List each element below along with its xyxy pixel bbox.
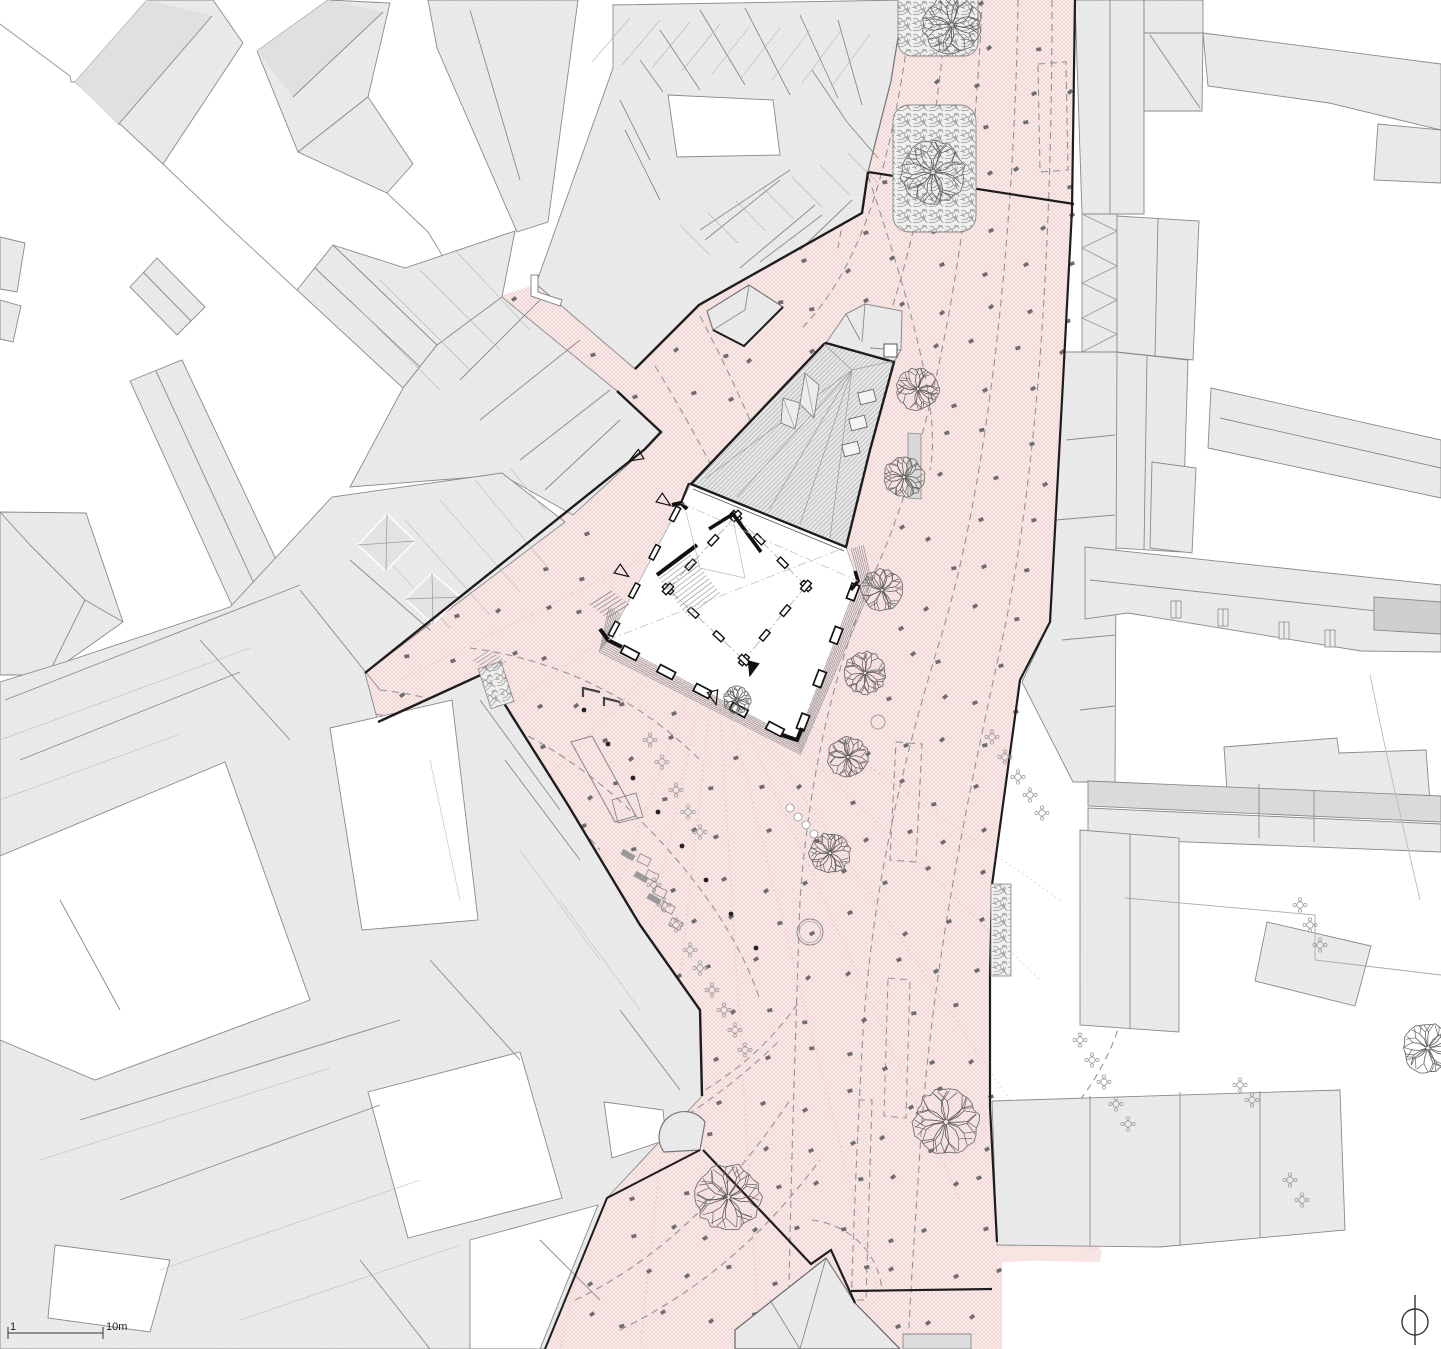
svg-text:1: 1 <box>10 1321 16 1333</box>
svg-text:10m: 10m <box>106 1321 127 1333</box>
